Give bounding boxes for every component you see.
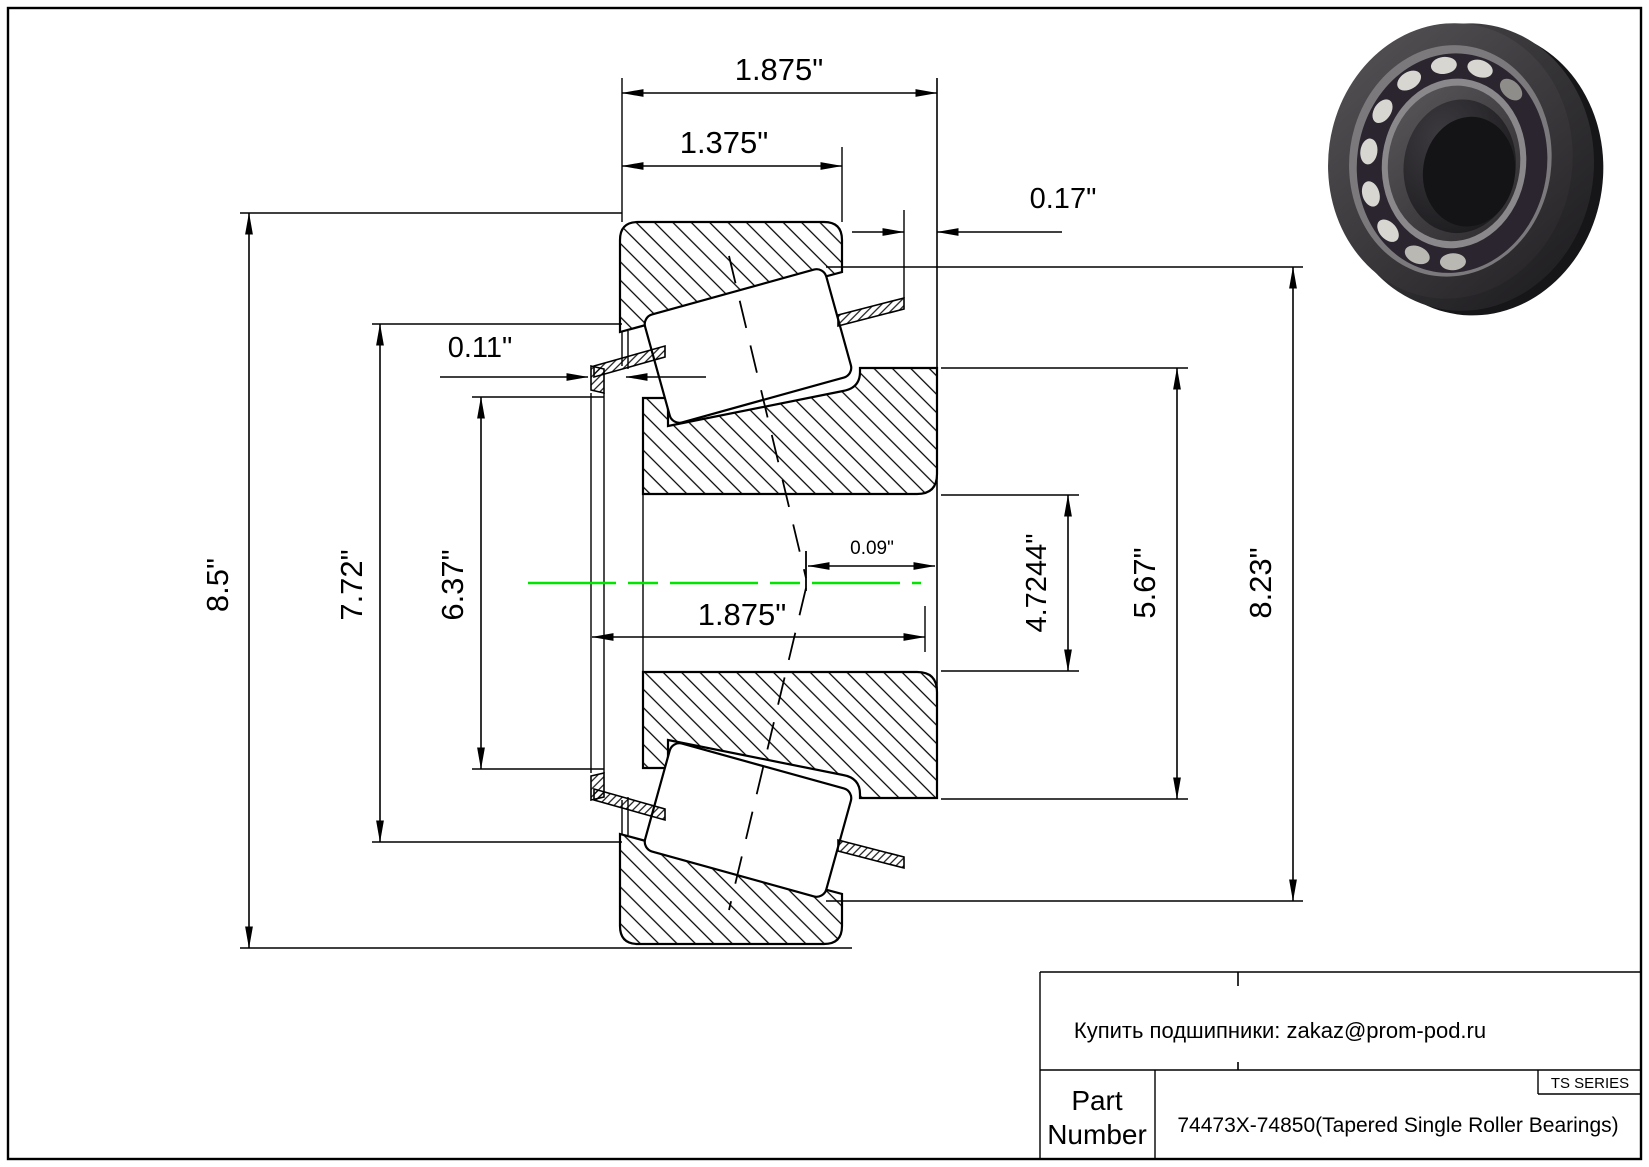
cage-strip-top-right — [838, 298, 904, 326]
dim-cage-lip-offset: 0.11" — [448, 332, 513, 364]
dim-outer-diameter: 8.5" — [200, 558, 235, 612]
title-block: Купить подшипники: zakaz@prom-pod.ru TS … — [1040, 972, 1642, 1159]
dim-cup-back-diameter: 7.72" — [334, 549, 369, 620]
cage-strip-bottom-right — [838, 840, 904, 868]
bearing-3d-illustration — [1309, 5, 1623, 332]
bearing-technical-drawing: 1.875" 1.375" 0.17" 0.11" 8.5" 7.72" 6.3… — [0, 0, 1649, 1167]
part-number: 74473X-74850(Tapered Single Roller Beari… — [1177, 1114, 1618, 1137]
part-label-line2: Number — [1047, 1119, 1147, 1150]
series-badge: TS SERIES — [1551, 1075, 1629, 1092]
dim-cone-front-diameter: 6.37" — [435, 549, 470, 620]
cage-lip-bottom — [591, 773, 604, 800]
dim-effective-center-offset: 0.09" — [850, 538, 894, 559]
drawing-sheet: 1.875" 1.375" 0.17" 0.11" 8.5" 7.72" 6.3… — [0, 0, 1649, 1167]
supplier-note: Купить подшипники: zakaz@prom-pod.ru — [1074, 1018, 1486, 1043]
cage-lip-top — [591, 366, 604, 393]
dim-bore-diameter: 4.7244" — [1021, 534, 1053, 633]
dim-cup-width: 1.375" — [680, 125, 769, 160]
dim-cage-standout: 0.17" — [1030, 183, 1097, 215]
dim-cone-width: 1.875" — [698, 597, 787, 632]
dim-roller-tip-diameter: 8.23" — [1243, 547, 1278, 618]
part-label-line1: Part — [1071, 1085, 1123, 1116]
dim-cone-back-diameter: 5.67" — [1127, 547, 1162, 618]
bearing-cross-section — [528, 78, 937, 944]
dim-overall-width-top: 1.875" — [735, 52, 824, 87]
